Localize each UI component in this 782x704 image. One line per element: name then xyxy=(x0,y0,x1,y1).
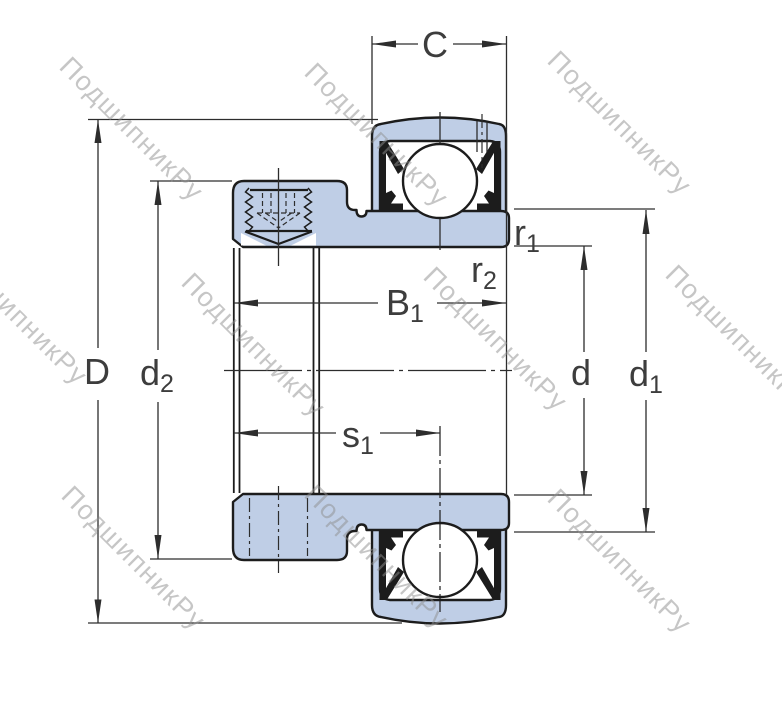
watermark-text: ПодшипникРу xyxy=(176,267,332,423)
dim-label-s1: s1 xyxy=(342,414,374,460)
dim-label-d1: d1 xyxy=(629,353,663,399)
watermarks: ПодшипникРу ПодшипникРу ПодшипникРу Подш… xyxy=(0,45,782,639)
watermark-text: ПодшипникРу xyxy=(542,483,698,639)
watermark-text: ПодшипникРу xyxy=(54,51,210,207)
dim-label-B1: B1 xyxy=(386,282,424,328)
dim-label-d2: d2 xyxy=(140,352,174,398)
watermark-text: ПодшипникРу xyxy=(0,235,94,391)
dim-label-C: C xyxy=(422,24,448,65)
watermark-text: ПодшипникРу xyxy=(56,480,212,636)
watermark-text: ПодшипникРу xyxy=(542,45,698,201)
dim-label-d: d xyxy=(571,352,591,393)
dim-label-r2: r2 xyxy=(471,249,497,295)
seal-right xyxy=(476,141,501,211)
dim-label-r1: r1 xyxy=(514,212,540,258)
watermark-text: ПодшипникРу xyxy=(660,259,782,415)
technical-drawing: C D d2 B1 s1 r1 r2 d d1 ПодшипникРу Подш… xyxy=(0,0,782,704)
